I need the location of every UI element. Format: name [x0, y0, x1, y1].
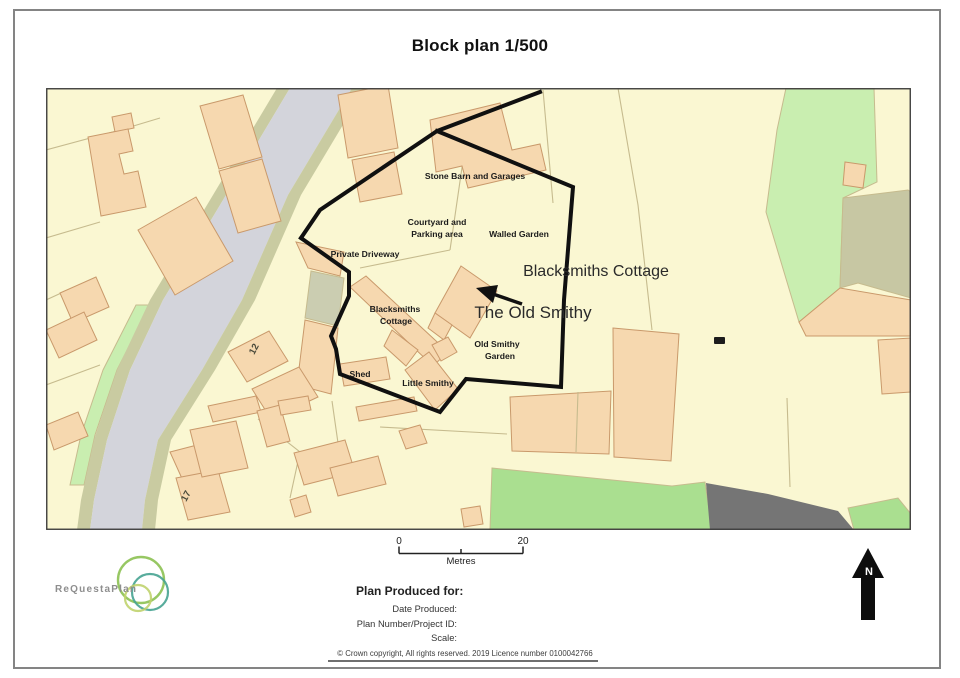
label-walled-garden: Walled Garden — [489, 229, 549, 239]
label-courtyard-line2: Parking area — [411, 229, 463, 239]
label-shed: Shed — [349, 369, 370, 379]
label-blacksmiths-cottage-large: Blacksmiths Cottage — [523, 263, 669, 280]
map-layers: Stone Barn and Garages Courtyard and Par… — [46, 88, 911, 530]
north-label: N — [865, 566, 873, 578]
block-plan-map: Stone Barn and Garages Courtyard and Par… — [46, 88, 911, 530]
label-little-smithy: Little Smithy — [402, 378, 454, 388]
label-blacksmiths-small-line2: Cottage — [380, 316, 412, 326]
scale-twenty-label: 20 — [517, 536, 529, 547]
building — [461, 506, 483, 527]
copyright-rule — [328, 660, 598, 662]
north-arrow-shaft — [861, 578, 875, 620]
label-blacksmiths-small-line1: Blacksmiths — [370, 304, 421, 314]
building — [112, 113, 134, 132]
scale-label: Scale: — [280, 633, 457, 643]
label-the-old-smithy-large: The Old Smithy — [474, 303, 592, 322]
page-title: Block plan 1/500 — [0, 36, 960, 56]
building — [613, 328, 679, 461]
logo-text: ReQuestaPlan — [55, 584, 137, 595]
plan-number-label: Plan Number/Project ID: — [280, 619, 457, 629]
label-courtyard-line1: Courtyard and — [408, 217, 467, 227]
plan-page: Block plan 1/500 — [0, 0, 960, 678]
field-olive-east — [840, 190, 911, 298]
label-old-smithy-garden-line1: Old Smithy — [474, 339, 520, 349]
scale-unit-label: Metres — [446, 556, 475, 567]
label-stone-barn: Stone Barn and Garages — [425, 171, 526, 181]
label-private-driveway: Private Driveway — [331, 249, 400, 259]
copyright-notice: © Crown copyright, All rights reserved. … — [322, 649, 608, 658]
building — [510, 391, 611, 454]
scale-bar: 0 20 Metres — [385, 528, 545, 568]
building-east-edge — [878, 338, 911, 394]
date-produced-label: Date Produced: — [280, 604, 457, 614]
label-old-smithy-garden-line2: Garden — [485, 351, 515, 361]
north-arrow-icon: N — [845, 543, 895, 625]
building — [338, 88, 398, 158]
requestaplan-logo: ReQuestaPlan — [48, 548, 198, 623]
produced-for-label: Plan Produced for: — [356, 584, 463, 598]
scale-bar-ticks — [399, 547, 523, 554]
scale-zero-label: 0 — [396, 536, 402, 547]
field-marker — [714, 337, 725, 344]
building — [843, 162, 866, 188]
